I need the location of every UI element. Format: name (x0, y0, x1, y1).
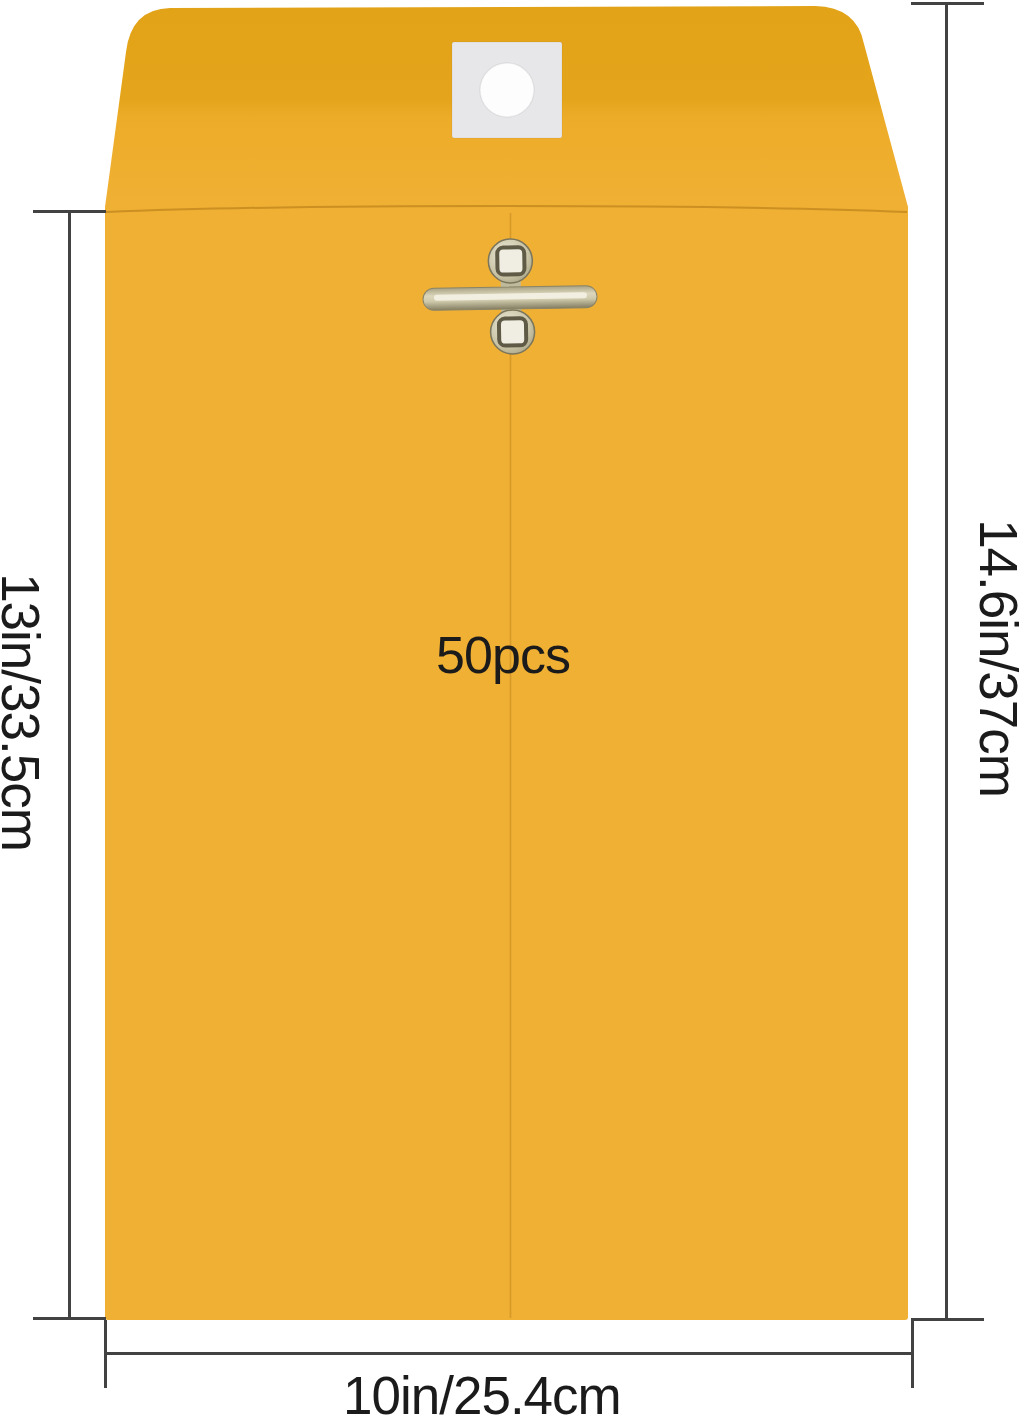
clasp-eyelet-bottom (490, 310, 535, 355)
right-dimension-tick-bottom (911, 1318, 984, 1321)
bottom-dimension-line (104, 1352, 913, 1355)
left-dimension-tick-bottom (33, 1317, 106, 1320)
right-dimension-tick-top (911, 2, 984, 5)
product-dimension-image: 50pcs 13in/33.5cm 14.6in/37cm 10in/25.4c… (0, 0, 1024, 1420)
quantity-label: 50pcs (436, 625, 570, 685)
width-label: 10in/25.4cm (343, 1367, 621, 1420)
envelope-illustration (0, 0, 1024, 1420)
left-dimension-tick-top (33, 210, 106, 213)
body-height-label: 13in/33.5cm (0, 573, 49, 851)
total-height-label: 14.6in/37cm (969, 519, 1024, 797)
right-dimension-line (945, 3, 948, 1320)
left-dimension-line (68, 212, 71, 1319)
reinforcement-patch (452, 42, 562, 138)
clasp-prong-bar (423, 285, 597, 310)
flap-hole (480, 63, 534, 117)
bottom-dimension-tick-left (104, 1320, 107, 1388)
envelope-body (105, 205, 908, 1320)
clasp-eyelet-top (488, 239, 533, 284)
bottom-dimension-tick-right (911, 1320, 914, 1388)
